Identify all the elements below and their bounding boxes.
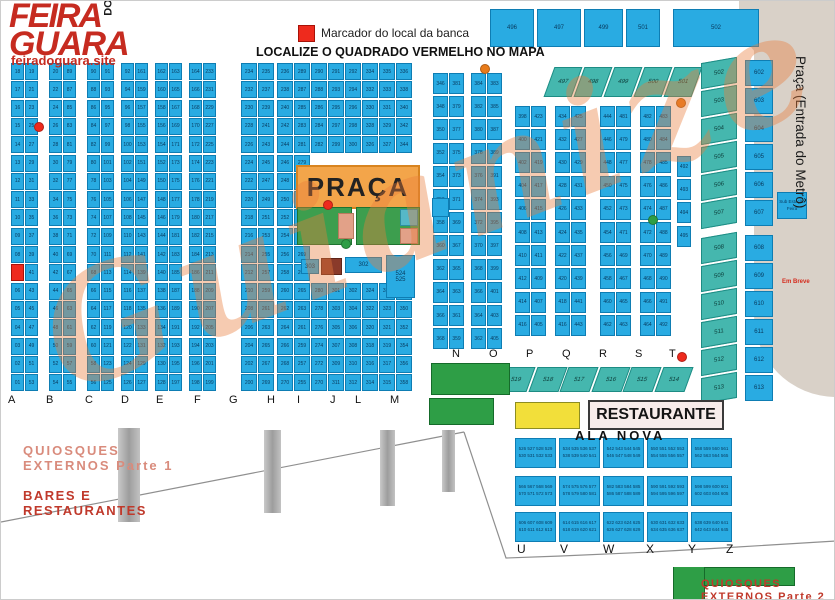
stall-cell: 242 xyxy=(277,118,293,135)
stall-cell: 156 xyxy=(155,118,168,135)
column-letter-G: G xyxy=(229,394,238,406)
legend-red-square xyxy=(298,25,315,42)
stall-cell: 478 xyxy=(640,152,655,173)
stall-cell: 425 xyxy=(571,106,586,127)
stall-cell: 134 xyxy=(155,319,168,336)
stall-cell: 214 xyxy=(241,246,257,263)
em-breve-label: Em Breve xyxy=(782,279,810,285)
ala-nova-title: ALA NOVA xyxy=(575,428,665,443)
stall-cell: 266 xyxy=(277,338,293,355)
stall-cell: 208 xyxy=(241,301,257,318)
stall-cell: 301 xyxy=(328,283,344,300)
stall-cell: 171 xyxy=(169,136,182,153)
stall-cell: 76 xyxy=(87,191,100,208)
stall-cell: 362 xyxy=(471,328,486,349)
stall-cell: 123 xyxy=(101,356,114,373)
stall-cell: 114 xyxy=(121,264,134,281)
stall-cell: 257 xyxy=(294,356,310,373)
stall-cell: 92 xyxy=(121,63,134,80)
stall-cell: 330 xyxy=(362,100,378,117)
stall-cell: 486 xyxy=(656,176,671,197)
stall-cell: 378 xyxy=(471,143,486,164)
stall-cell: 211 xyxy=(203,264,216,281)
stall-cell: 354 xyxy=(396,338,412,355)
map-marker-dot xyxy=(648,215,658,225)
stall-cell: 201 xyxy=(203,356,216,373)
stall-cell: 454 xyxy=(600,222,615,243)
stall-cell: 389 xyxy=(487,143,502,164)
bares-restaurantes-label: BARES E RESTAURANTES xyxy=(23,489,147,519)
stall-cell: 427 xyxy=(571,129,586,150)
stall-cell xyxy=(321,258,342,275)
stall-cell: 261 xyxy=(258,301,274,318)
stall-cell: 196 xyxy=(189,356,202,373)
stall-cell: 204 xyxy=(241,338,257,355)
stall-cell: 320 xyxy=(362,319,378,336)
stall-cell: 122 xyxy=(121,338,134,355)
stall-cell: 463 xyxy=(616,315,631,336)
restaurante-label: RESTAURANTE xyxy=(588,400,724,430)
stall-cell: 315 xyxy=(379,374,395,391)
ala-nova-cell: 598 599 600 601602 603 604 605 xyxy=(691,476,732,506)
stall-cell: 237 xyxy=(258,81,274,98)
pillar xyxy=(380,430,395,506)
stall-cell: 274 xyxy=(311,338,327,355)
column-letter-D: D xyxy=(121,394,129,406)
stall-cell: 336 xyxy=(396,63,412,80)
stall-cell: 164 xyxy=(189,63,202,80)
stall-cell: 473 xyxy=(616,199,631,220)
stall-cell: 116 xyxy=(121,283,134,300)
stall-cell: 318 xyxy=(362,338,378,355)
stall-cell: 422 xyxy=(555,245,570,266)
stall-cell: 115 xyxy=(101,283,114,300)
stall-cell: 401 xyxy=(487,282,502,303)
stall-cell: 299 xyxy=(328,136,344,153)
stall-cell: 490 xyxy=(656,268,671,289)
stall-cell: 63 xyxy=(63,301,76,318)
stall-cell: 444 xyxy=(600,106,615,127)
stall-cell: 52 xyxy=(49,356,62,373)
stall-cell: 191 xyxy=(169,319,182,336)
stall-cell: 33 xyxy=(25,191,38,208)
stall-cell: 298 xyxy=(345,118,361,135)
stall-cell: 290 xyxy=(311,63,327,80)
stall-cell: 37 xyxy=(25,228,38,245)
stall-cell: 240 xyxy=(277,100,293,117)
stall-cell: 38 xyxy=(49,228,62,245)
stall-cell: 437 xyxy=(571,245,586,266)
stall-cell: 261 xyxy=(294,319,310,336)
stall-cell: 187 xyxy=(169,283,182,300)
stall-cell: 43 xyxy=(25,283,38,300)
stall-cell: 158 xyxy=(155,100,168,117)
stall-cell: 293 xyxy=(328,81,344,98)
stall-cell: 243 xyxy=(258,136,274,153)
stall-cell: 205 xyxy=(203,319,216,336)
stall-cell: 375 xyxy=(449,143,464,164)
stall-cell: 64 xyxy=(87,301,100,318)
stall-cell: 226 xyxy=(241,136,257,153)
stall-cell: 143 xyxy=(135,228,148,245)
stall-cell: 407 xyxy=(531,292,546,313)
stall-cell: 97 xyxy=(101,118,114,135)
quiosques-2-line2: EXTERNOS Parte 2 xyxy=(701,591,825,600)
quiosques-2-line1: QUIOSQUES xyxy=(701,578,825,591)
stall-cell: 359 xyxy=(449,328,464,349)
stall-cell: 106 xyxy=(121,191,134,208)
quiosques-externos-1-label: QUIOSQUES EXTERNOS Parte 1 xyxy=(23,444,174,474)
stall-cell: 612 xyxy=(745,347,773,373)
stall-cell: 373 xyxy=(449,166,464,187)
stall-cell: 35 xyxy=(25,209,38,226)
map-title: LOCALIZE O QUADRADO VERMELHO NO MAPA xyxy=(256,45,545,59)
stall-cell: 303 xyxy=(328,301,344,318)
stall-cell: 350 xyxy=(433,119,448,140)
stall-cell: 28 xyxy=(49,136,62,153)
stall-cell: 257 xyxy=(258,264,274,281)
stall-cell: 49 xyxy=(25,338,38,355)
stall-cell: 86 xyxy=(87,100,100,117)
stall-cell: 189 xyxy=(169,301,182,318)
stall-cell: 403 xyxy=(487,305,502,326)
column-letter-S: S xyxy=(635,348,642,360)
stall-cell: 51 xyxy=(25,356,38,373)
stall-cell: 483 xyxy=(656,106,671,127)
stall-cell: 480 xyxy=(640,129,655,150)
stall-cell: 431 xyxy=(571,176,586,197)
quiosques-1-line2: EXTERNOS Parte 1 xyxy=(23,459,174,474)
stall-cell: 475 xyxy=(616,176,631,197)
stall-cell: 334 xyxy=(362,63,378,80)
stall-cell: 602 xyxy=(745,60,773,86)
stall-cell: 416 xyxy=(515,315,530,336)
stall-cell: 155 xyxy=(135,118,148,135)
stall-cell: 09 xyxy=(11,228,24,245)
stall-cell: 210 xyxy=(241,283,257,300)
stall-cell: 335 xyxy=(379,63,395,80)
stall-cell: 77 xyxy=(63,173,76,190)
stall-cell: 55 xyxy=(63,374,76,391)
stall-cell: 71 xyxy=(63,228,76,245)
stall-cell: 433 xyxy=(571,199,586,220)
stall-cell: 468 xyxy=(640,268,655,289)
stall-cell: 423 xyxy=(531,106,546,127)
stall-cell: 456 xyxy=(600,245,615,266)
stall-cell: 312 xyxy=(345,374,361,391)
stall-cell: 194 xyxy=(189,338,202,355)
stall-cell: 420 xyxy=(555,268,570,289)
stall-cell: 489 xyxy=(656,245,671,266)
stall-cell: 44 xyxy=(49,283,62,300)
stall-cell: 01 xyxy=(11,374,24,391)
stall-cell: 366 xyxy=(471,282,486,303)
column-letter-E: E xyxy=(156,394,163,406)
stall-cell: 87 xyxy=(63,81,76,98)
stall-cell: 410 xyxy=(515,245,530,266)
stall-cell: 73 xyxy=(63,209,76,226)
stall-cell: 166 xyxy=(189,81,202,98)
stall-cell: 31 xyxy=(25,173,38,190)
stall-cell: 235 xyxy=(258,63,274,80)
stall-cell: 308 xyxy=(345,338,361,355)
stall-cell: 248 xyxy=(277,173,293,190)
stall-cell: 177 xyxy=(169,191,182,208)
stall-cell: 182 xyxy=(189,228,202,245)
stall-cell: 232 xyxy=(241,81,257,98)
stall-cell xyxy=(432,198,449,217)
stall-cell: 367 xyxy=(449,235,464,256)
stall-cell: 356 xyxy=(396,356,412,373)
stall-cell: 382 xyxy=(471,96,486,117)
stall-cell: 479 xyxy=(616,129,631,150)
pillar xyxy=(264,430,281,513)
metro-entrance-label: Praça (Entrada do Metrô) xyxy=(793,56,808,396)
stall-cell: 124 xyxy=(121,356,134,373)
stall-cell: 421 xyxy=(531,129,546,150)
stall-cell: 104 xyxy=(121,173,134,190)
stall-cell: 150 xyxy=(155,173,168,190)
site-url[interactable]: feiradoguara.site xyxy=(11,53,116,68)
stall-cell: 78 xyxy=(87,173,100,190)
stall-cell: 234 xyxy=(241,63,257,80)
stall-cell: 222 xyxy=(241,173,257,190)
ala-nova-cell: 574 575 576 577578 579 580 581 xyxy=(559,476,600,506)
stall-cell: 430 xyxy=(555,152,570,173)
stall-cell: 404 xyxy=(515,176,530,197)
stall-cell: 146 xyxy=(155,209,168,226)
stall-cell: 139 xyxy=(135,264,148,281)
stall-cell: 250 xyxy=(277,191,293,208)
stall-cell: 460 xyxy=(600,292,615,313)
stall-cell: 137 xyxy=(135,283,148,300)
stall-cell: 604 xyxy=(745,116,773,142)
stall-cell: 144 xyxy=(155,228,168,245)
stall-cell: 485 xyxy=(656,152,671,173)
stall-cell: 42 xyxy=(49,264,62,281)
green-corridor xyxy=(431,363,510,395)
stall-cell: 247 xyxy=(258,173,274,190)
ala-nova-cell: 606 607 608 609610 611 612 613 xyxy=(515,512,556,542)
stall-cell: 209 xyxy=(203,283,216,300)
stall-cell: 121 xyxy=(101,338,114,355)
stall-cell: 11 xyxy=(11,191,24,208)
map-marker-dot xyxy=(676,98,686,108)
stall-cell: 371 xyxy=(449,189,464,210)
stall-cell: 41 xyxy=(25,264,38,281)
stall-cell: 253 xyxy=(258,228,274,245)
stall-cell: 434 xyxy=(555,106,570,127)
stall-cell: 132 xyxy=(155,338,168,355)
stall-cell: 458 xyxy=(600,268,615,289)
stall-cell: 147 xyxy=(135,191,148,208)
stall-cell: 32 xyxy=(49,173,62,190)
stall-cell: 17 xyxy=(11,81,24,98)
stall-cell: 105 xyxy=(101,191,114,208)
stall-cell: 99 xyxy=(101,136,114,153)
stall-cell: 326 xyxy=(362,136,378,153)
stall-cell: 67 xyxy=(63,264,76,281)
stall-cell: 398 xyxy=(515,106,530,127)
stall-cell: 217 xyxy=(203,209,216,226)
stall-cell: 381 xyxy=(449,73,464,94)
stall-cell: 109 xyxy=(101,228,114,245)
stall-cell: 96 xyxy=(121,100,134,117)
stall-cell: 297 xyxy=(328,118,344,135)
stall-cell: 280 xyxy=(311,283,327,300)
stall-cell: 29 xyxy=(25,155,38,172)
stall-cell: 329 xyxy=(379,118,395,135)
stall-cell: 291 xyxy=(328,63,344,80)
ala-nova-cell: 558 559 560 561562 563 564 565 xyxy=(691,438,732,468)
stall-cell: 402 xyxy=(515,152,530,173)
stall-cell: 138 xyxy=(155,283,168,300)
stall-cell: 316 xyxy=(362,356,378,373)
stall-cell: 272 xyxy=(311,356,327,373)
stall-block: 497 xyxy=(537,9,581,47)
stall-cell: 306 xyxy=(345,319,361,336)
stall-cell: 477 xyxy=(616,152,631,173)
stall-cell: 286 xyxy=(311,100,327,117)
stall-cell: 167 xyxy=(169,100,182,117)
stall-cell: 188 xyxy=(189,283,202,300)
stall-cell: 72 xyxy=(87,228,100,245)
stall-cell: 385 xyxy=(487,96,502,117)
stall-cell: 399 xyxy=(487,259,502,280)
stall-cell: 412 xyxy=(515,268,530,289)
stall-cell: 397 xyxy=(487,235,502,256)
stall-cell: 120 xyxy=(121,319,134,336)
stall-cell: 110 xyxy=(121,228,134,245)
stall-cell: 369 xyxy=(449,212,464,233)
stall-cell: 416 xyxy=(555,315,570,336)
green-corridor xyxy=(429,398,494,425)
stall-cell: 464 xyxy=(640,315,655,336)
column-letter-U: U xyxy=(517,542,526,556)
stall-cell: 429 xyxy=(571,152,586,173)
column-letter-J: J xyxy=(330,394,336,406)
column-letter-Z: Z xyxy=(726,542,733,556)
stall-cell: 75 xyxy=(63,191,76,208)
column-letter-R: R xyxy=(599,348,607,360)
quiosques-1-line1: QUIOSQUES xyxy=(23,444,174,459)
stall-cell: 225 xyxy=(203,136,216,153)
stall-cell: 493 xyxy=(677,179,691,200)
stall-cell: 130 xyxy=(155,356,168,373)
stall-cell: 220 xyxy=(241,191,257,208)
stall-cell: 323 xyxy=(379,301,395,318)
stall-cell: 94 xyxy=(121,81,134,98)
stall-cell: 321 xyxy=(379,319,395,336)
stall-cell: 462 xyxy=(600,315,615,336)
stall-cell: 26 xyxy=(49,118,62,135)
stall-cell: 200 xyxy=(241,374,257,391)
stall-cell: 269 xyxy=(258,374,274,391)
stall-cell: 165 xyxy=(169,81,182,98)
stall-cell: 470 xyxy=(640,245,655,266)
banca-location-marker xyxy=(11,264,24,281)
stall-cell: 40 xyxy=(49,246,62,263)
stall-cell: 606 xyxy=(745,172,773,198)
stall-block: 502 xyxy=(673,9,759,47)
stall-cell: 365 xyxy=(449,259,464,280)
stall-cell: 481 xyxy=(616,106,631,127)
ala-nova-cell: 566 567 568 569570 571 572 573 xyxy=(515,476,556,506)
stall-cell: 393 xyxy=(487,189,502,210)
stall-cell: 391 xyxy=(487,166,502,187)
stall-cell: 363 xyxy=(449,282,464,303)
stall-cell: 370 xyxy=(471,235,486,256)
stall-cell: 192 xyxy=(189,319,202,336)
stall-cell: 419 xyxy=(531,152,546,173)
stall-cell: 45 xyxy=(25,301,38,318)
stall-cell: 476 xyxy=(640,176,655,197)
stall-cell: 439 xyxy=(571,268,586,289)
stall-cell: 613 xyxy=(745,375,773,401)
stall-cell: 184 xyxy=(189,246,202,263)
stall-cell: 406 xyxy=(515,199,530,220)
stall-cell: 131 xyxy=(135,338,148,355)
stall-cell: 212 xyxy=(241,264,257,281)
stall-cell: 287 xyxy=(294,81,310,98)
column-letter-M: M xyxy=(390,394,399,406)
praca-small-cell xyxy=(400,228,418,244)
stall-cell: 54 xyxy=(49,374,62,391)
stall-cell: 361 xyxy=(449,305,464,326)
stall-cell: 484 xyxy=(656,129,671,150)
stall-cell: 06 xyxy=(11,283,24,300)
stall-cell: 30 xyxy=(49,155,62,172)
stall-cell: 309 xyxy=(328,356,344,373)
stall-cell: 93 xyxy=(101,81,114,98)
map-marker-dot xyxy=(323,200,333,210)
ala-nova-cell: 630 631 632 633634 635 636 637 xyxy=(647,512,688,542)
stall-cell: 15 xyxy=(11,118,24,135)
stall-cell: 262 xyxy=(277,301,293,318)
stall-cell: 195 xyxy=(169,356,182,373)
stall-cell: 227 xyxy=(203,118,216,135)
stall-block: 501 xyxy=(626,9,660,47)
stall-cell: 469 xyxy=(616,245,631,266)
stall-cell: 292 xyxy=(345,63,361,80)
stall-cell: 60 xyxy=(87,338,100,355)
stall-cell: 333 xyxy=(379,81,395,98)
stall-cell: 285 xyxy=(294,100,310,117)
stall-cell: 384 xyxy=(471,73,486,94)
stall-cell: 331 xyxy=(379,100,395,117)
stall-cell: 103 xyxy=(101,173,114,190)
stall-cell: 524525 xyxy=(386,255,415,298)
stall-cell: 302 xyxy=(345,257,382,273)
stall-cell: 135 xyxy=(135,301,148,318)
column-letter-C: C xyxy=(85,394,93,406)
stall-cell: 218 xyxy=(241,209,257,226)
stall-cell: 314 xyxy=(362,374,378,391)
stall-cell: 62 xyxy=(87,319,100,336)
stall-cell: 168 xyxy=(189,100,202,117)
stall-cell: 482 xyxy=(640,106,655,127)
stall-cell: 179 xyxy=(169,209,182,226)
stall-cell: 180 xyxy=(189,209,202,226)
stall-cell: 411 xyxy=(531,245,546,266)
stall-cell: 342 xyxy=(396,118,412,135)
stall-cell: 244 xyxy=(277,136,293,153)
stall-cell: 270 xyxy=(277,374,293,391)
stall-cell: 190 xyxy=(189,301,202,318)
map-marker-dot xyxy=(34,122,44,132)
stall-cell: 354 xyxy=(433,166,448,187)
stall-cell: 185 xyxy=(169,264,182,281)
